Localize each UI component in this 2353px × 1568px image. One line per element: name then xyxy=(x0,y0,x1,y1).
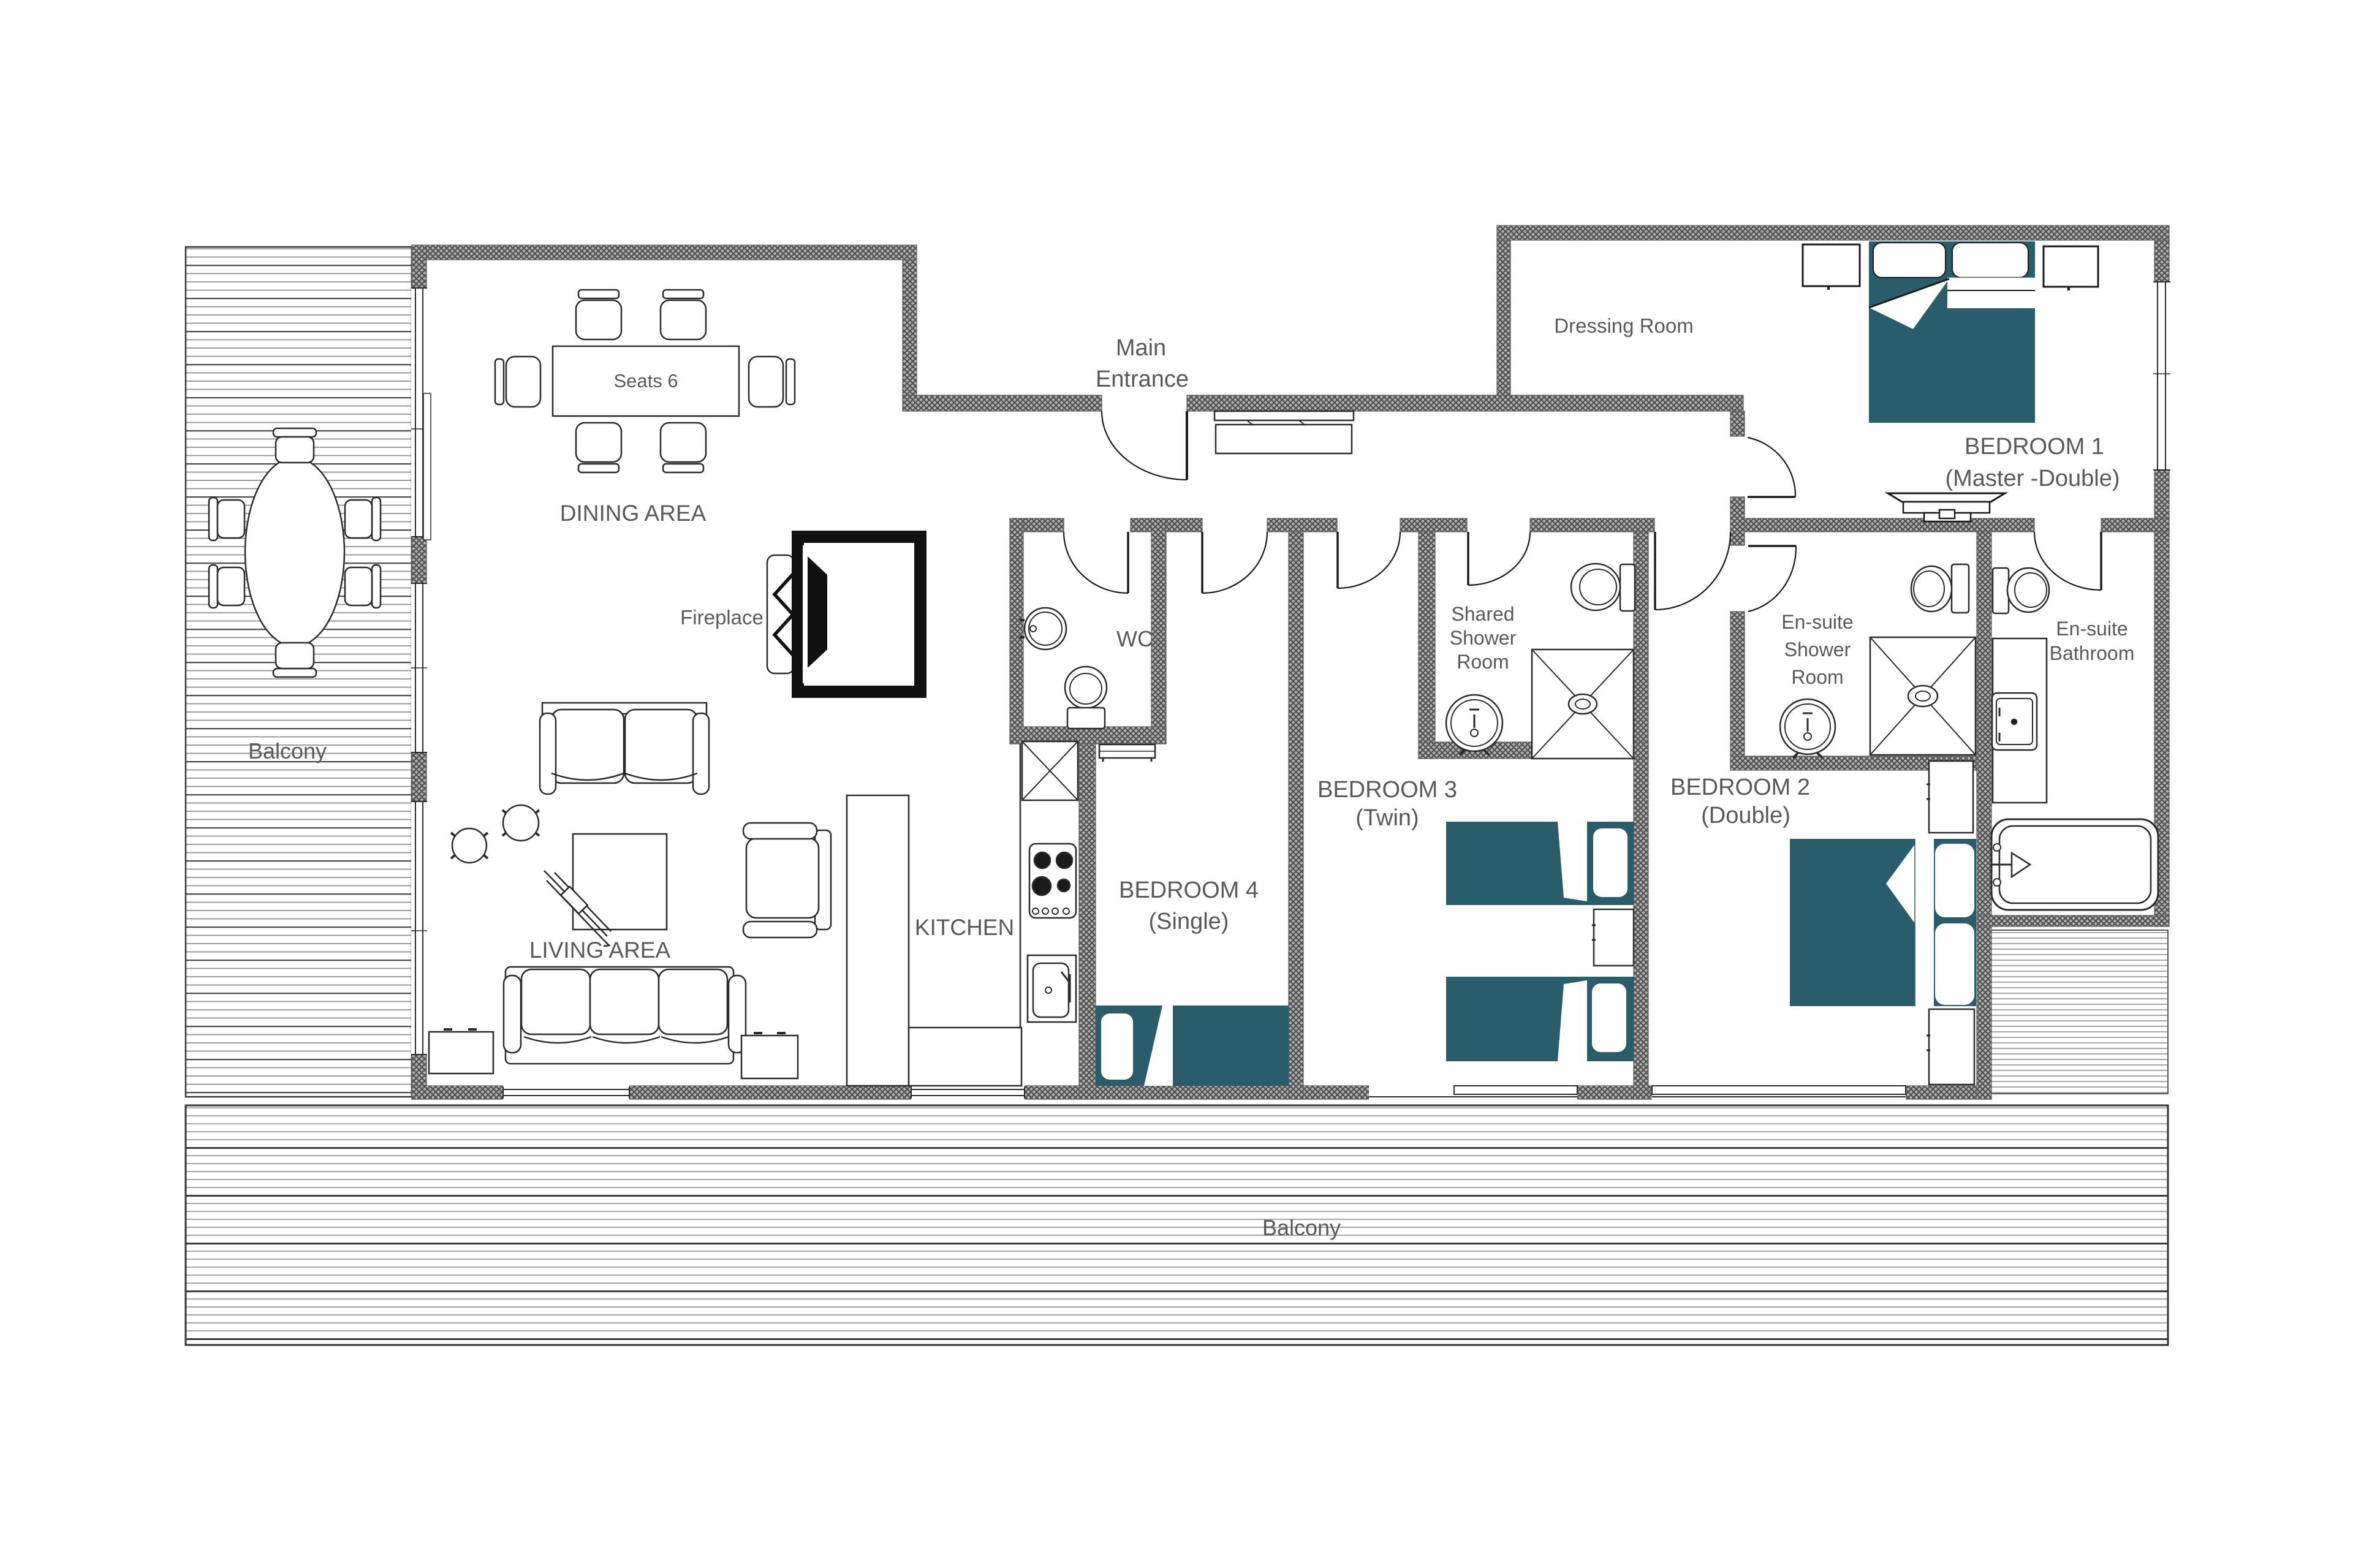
svg-text:BEDROOM 3: BEDROOM 3 xyxy=(1317,777,1457,803)
svg-text:(Master -Double): (Master -Double) xyxy=(1945,466,2120,491)
svg-text:Balcony: Balcony xyxy=(248,738,327,763)
svg-text:Main: Main xyxy=(1116,335,1166,361)
svg-text:Shower: Shower xyxy=(1450,627,1517,649)
svg-text:Fireplace: Fireplace xyxy=(680,606,763,629)
svg-text:KITCHEN: KITCHEN xyxy=(915,915,1014,940)
svg-text:Dressing Room: Dressing Room xyxy=(1554,314,1693,337)
svg-text:LIVING AREA: LIVING AREA xyxy=(529,937,671,963)
svg-text:BEDROOM 1: BEDROOM 1 xyxy=(1965,434,2104,460)
svg-text:BEDROOM 4: BEDROOM 4 xyxy=(1119,877,1259,903)
svg-text:(Single): (Single) xyxy=(1149,909,1229,934)
svg-text:DINING AREA: DINING AREA xyxy=(560,501,707,526)
svg-text:Room: Room xyxy=(1791,666,1843,688)
svg-text:Bathroom: Bathroom xyxy=(2050,642,2135,664)
svg-text:Room: Room xyxy=(1457,651,1509,673)
svg-text:(Twin): (Twin) xyxy=(1355,805,1419,831)
svg-text:Entrance: Entrance xyxy=(1096,366,1189,392)
svg-text:Shared: Shared xyxy=(1451,603,1514,625)
svg-text:En-suite: En-suite xyxy=(2056,618,2128,640)
svg-text:Seats 6: Seats 6 xyxy=(613,370,678,392)
svg-text:En-suite: En-suite xyxy=(1781,611,1853,633)
svg-text:(Double): (Double) xyxy=(1701,803,1790,828)
svg-text:BEDROOM 2: BEDROOM 2 xyxy=(1670,775,1810,800)
svg-text:Balcony: Balcony xyxy=(1262,1215,1341,1240)
svg-text:Shower: Shower xyxy=(1784,638,1851,661)
svg-text:WC: WC xyxy=(1116,626,1153,651)
